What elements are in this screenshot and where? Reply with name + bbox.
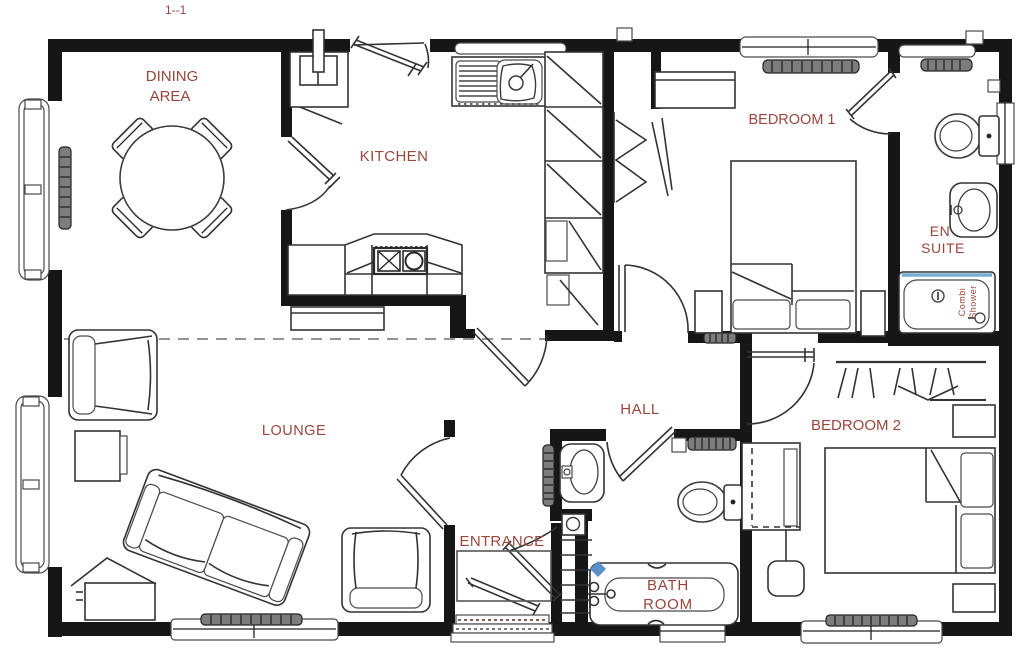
svg-text:DINING: DINING — [146, 68, 199, 85]
svg-text:BEDROOM 2: BEDROOM 2 — [811, 417, 901, 434]
svg-text:SUITE: SUITE — [921, 240, 965, 256]
svg-text:Combi: Combi — [957, 288, 967, 317]
svg-text:BATH: BATH — [647, 577, 689, 594]
svg-text:AREA: AREA — [150, 88, 191, 105]
svg-text:ROOM: ROOM — [643, 596, 693, 613]
svg-text:BEDROOM 1: BEDROOM 1 — [748, 112, 835, 128]
svg-text:EN: EN — [930, 223, 950, 239]
svg-text:ENTRANCE: ENTRANCE — [460, 533, 545, 550]
svg-text:KITCHEN: KITCHEN — [360, 148, 429, 165]
svg-text:LOUNGE: LOUNGE — [262, 423, 326, 439]
svg-text:HALL: HALL — [620, 401, 660, 418]
svg-text:1--1: 1--1 — [165, 3, 187, 17]
svg-text:Shower: Shower — [968, 285, 978, 319]
